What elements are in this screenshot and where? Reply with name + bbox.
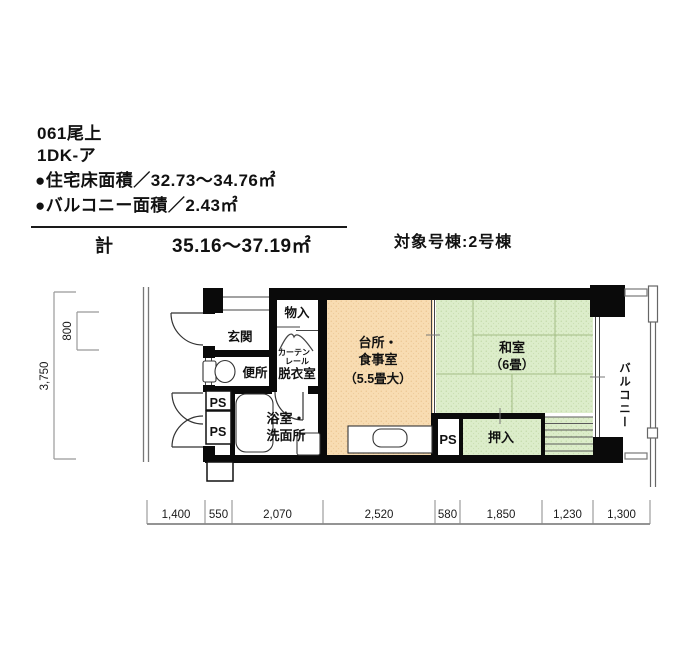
curtain-label-1: カーテン [278, 348, 310, 357]
ps-door-upper [172, 393, 203, 424]
entrance-door [171, 313, 203, 345]
curtain-label-2: レール [285, 357, 309, 366]
bottom-dimensions: 1,400 550 2,070 2,520 580 1,850 1,230 1,… [147, 500, 650, 524]
plan-type: 1DK-ア [37, 141, 96, 166]
dim-3750-label: 3,750 [39, 362, 51, 391]
vertical-dimensions: 3,750 800 [39, 292, 99, 459]
storage-sliding-door [277, 327, 318, 331]
japanese-room-floor [436, 300, 593, 413]
kitchen-sink [373, 429, 407, 447]
corridor-edge [144, 287, 149, 462]
dim-bottom-0: 1,400 [162, 509, 191, 521]
japanese-room-label-2: （6畳） [490, 357, 534, 372]
genkan-top-window [223, 297, 269, 310]
kitchen-label-1: 台所・ [358, 335, 397, 350]
dressing-room-label: 脱衣室 [278, 366, 316, 381]
total-value: 35.16〜37.19㎡ [172, 231, 311, 258]
floorplan-page: 061尾上 1DK-ア ●住宅床面積／32.73〜34.76㎡ ●バルコニー面積… [0, 0, 700, 650]
closet-label: 押入 [488, 430, 514, 445]
total-label: 計 [95, 232, 114, 258]
railing-joint [648, 428, 658, 438]
railing-top-post [649, 286, 658, 322]
bathroom-label-2: 洗面所 [266, 428, 305, 443]
dim-bottom-4: 580 [438, 509, 457, 521]
dim-800-label: 800 [62, 321, 74, 340]
toilet-bowl [215, 361, 235, 383]
total-rule [31, 226, 347, 228]
exterior-duct-box [207, 462, 233, 481]
dim-bottom-3: 2,520 [365, 509, 394, 521]
target-building: 対象号棟:2号棟 [394, 228, 512, 252]
dim-3750-bracket [54, 292, 76, 459]
dim-bottom-1: 550 [209, 509, 228, 521]
dim-800-bracket [77, 312, 99, 350]
floorplan-drawing: 玄関 物入 便所 カーテン レール 脱衣室 PS PS 浴室・ 洗面所 台所・ … [0, 0, 700, 650]
ps-label-bottom: PS [439, 432, 457, 447]
bathroom-label-1: 浴室・ [266, 411, 305, 426]
dim-bottom-7: 1,300 [607, 509, 636, 521]
balcony-partition-bottom [625, 453, 647, 459]
ps-label-upper: PS [210, 396, 227, 410]
balcony-partition-top [625, 289, 647, 296]
dim-bottom-2: 2,070 [263, 509, 292, 521]
kitchen-label-3: （5.5畳大） [344, 371, 411, 386]
balcony-area-line: ●バルコニー面積／2.43㎡ [35, 191, 238, 216]
ps-label-lower: PS [210, 425, 227, 439]
japanese-room-label-1: 和室 [499, 340, 525, 355]
balcony-label: バルコニー [614, 351, 632, 441]
kitchen-label-2: 食事室 [358, 352, 397, 367]
railing-lines [651, 320, 656, 487]
dim-bottom-6: 1,230 [553, 509, 582, 521]
ps-door-lower [172, 416, 203, 447]
genkan-label: 玄関 [227, 329, 252, 344]
toilet-label: 便所 [242, 365, 268, 380]
floor-area-line: ●住宅床面積／32.73〜34.76㎡ [35, 166, 276, 191]
dim-bottom-5: 1,850 [487, 509, 516, 521]
toilet-tank [203, 361, 216, 382]
storage-label: 物入 [284, 305, 310, 320]
